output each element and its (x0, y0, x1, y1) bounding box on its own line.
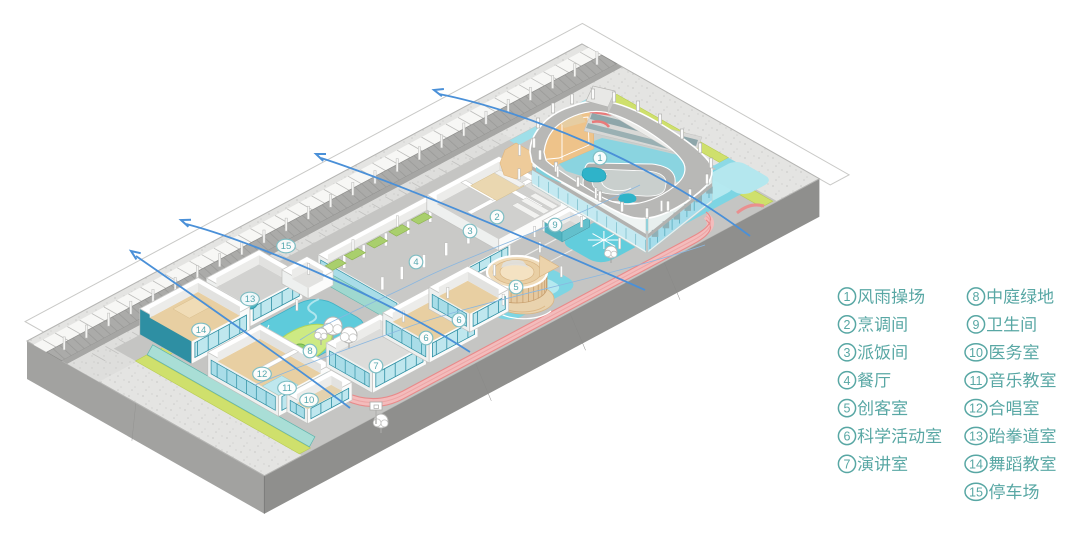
svg-text:9: 9 (973, 318, 980, 332)
svg-text:13: 13 (969, 430, 983, 444)
svg-text:12: 12 (969, 402, 983, 416)
svg-text:5: 5 (844, 402, 851, 416)
svg-text:10: 10 (969, 346, 983, 360)
svg-text:10: 10 (304, 395, 315, 406)
svg-text:14: 14 (196, 325, 207, 336)
svg-text:3: 3 (467, 226, 472, 237)
svg-text:7: 7 (373, 361, 378, 372)
svg-text:1: 1 (597, 153, 602, 164)
svg-text:5: 5 (513, 282, 518, 293)
svg-text:11: 11 (970, 374, 983, 388)
svg-text:3: 3 (844, 346, 851, 360)
svg-text:6: 6 (423, 333, 428, 344)
svg-text:2: 2 (494, 212, 499, 223)
svg-text:12: 12 (257, 369, 268, 380)
svg-text:14: 14 (969, 458, 983, 472)
svg-text:11: 11 (282, 383, 292, 394)
svg-text:8: 8 (307, 346, 312, 357)
svg-text:8: 8 (973, 290, 980, 304)
svg-text:15: 15 (969, 485, 983, 499)
svg-text:4: 4 (844, 374, 851, 388)
svg-text:7: 7 (844, 458, 851, 472)
svg-text:6: 6 (456, 315, 461, 326)
svg-text:13: 13 (245, 294, 256, 305)
svg-text:4: 4 (413, 257, 418, 268)
svg-text:1: 1 (844, 290, 851, 304)
svg-text:15: 15 (281, 241, 292, 252)
svg-text:2: 2 (844, 318, 851, 332)
svg-text:9: 9 (552, 220, 557, 231)
svg-text:6: 6 (844, 430, 851, 444)
